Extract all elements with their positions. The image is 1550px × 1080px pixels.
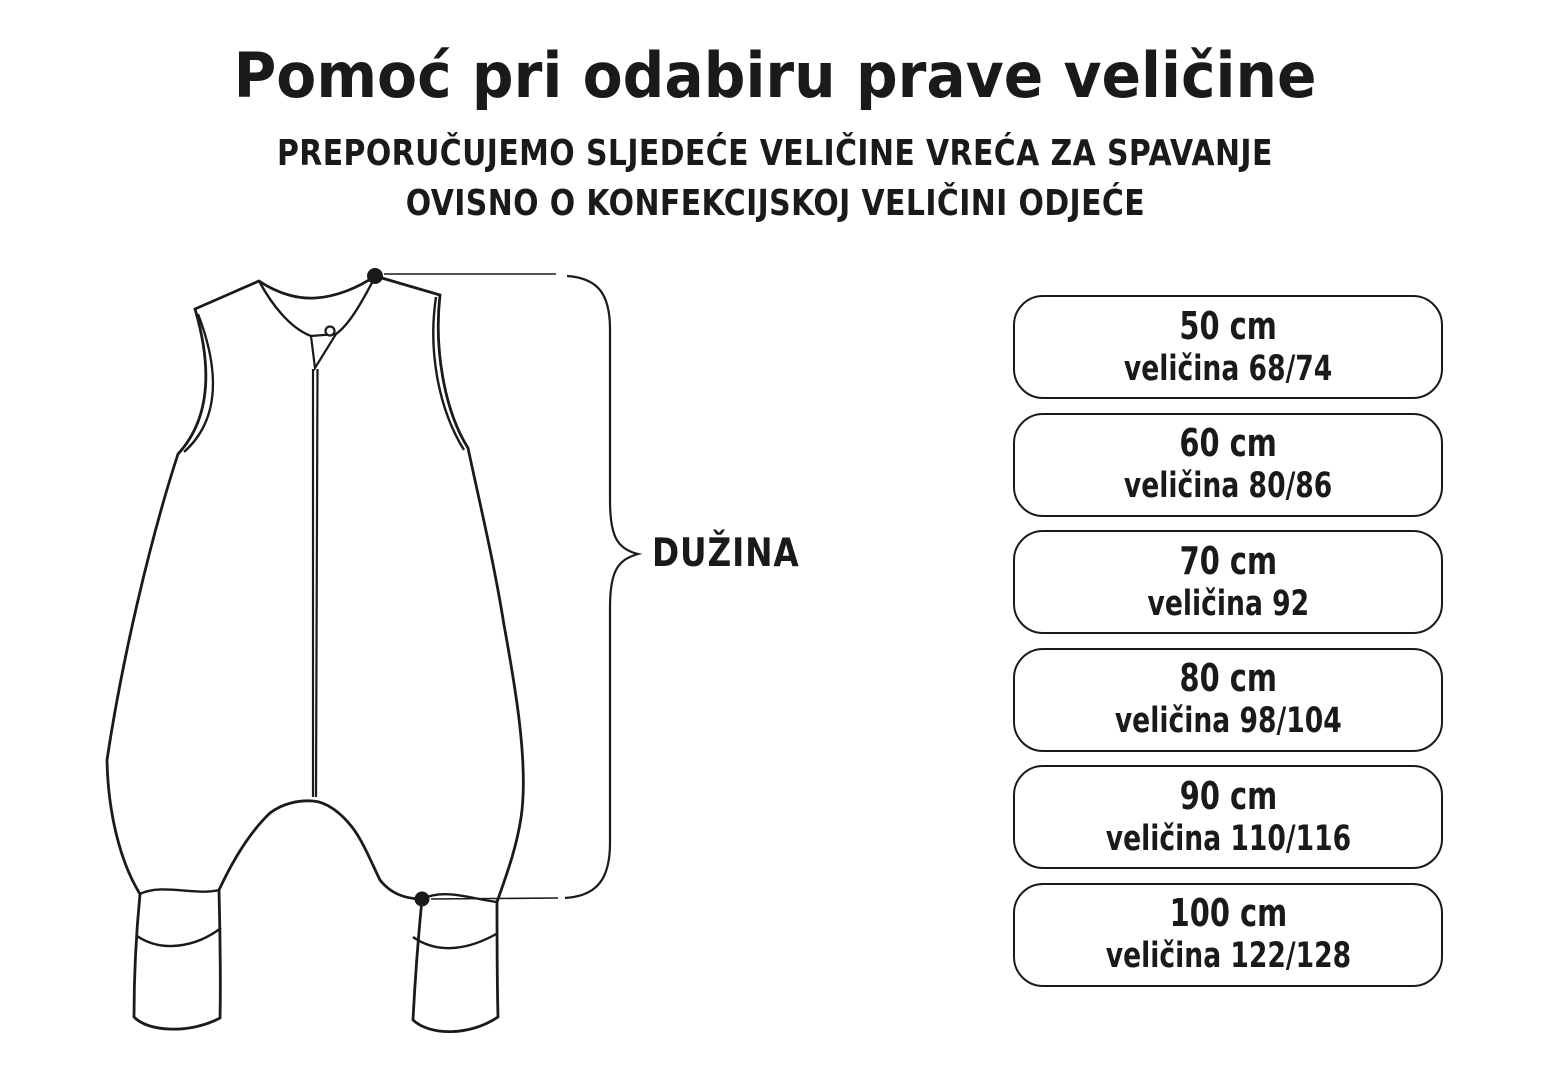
size-length: 70 cm	[1147, 539, 1309, 584]
size-box-90cm: 90 cm veličina 110/116	[1013, 765, 1443, 869]
size-box-50cm: 50 cm veličina 68/74	[1013, 295, 1443, 399]
garment-outline	[107, 276, 523, 1032]
size-box-content: 90 cm veličina 110/116	[1105, 774, 1350, 860]
size-confection: veličina 122/128	[1105, 936, 1350, 977]
size-box-content: 80 cm veličina 98/104	[1115, 656, 1342, 742]
size-confection: veličina 80/86	[1124, 466, 1332, 507]
zipper-line	[313, 369, 318, 797]
bottom-measure-dot	[415, 892, 430, 907]
size-box-content: 50 cm veličina 68/74	[1124, 304, 1332, 390]
neckline-front-right	[336, 277, 375, 334]
measurement-line-bottom	[431, 898, 558, 899]
size-length: 100 cm	[1105, 891, 1350, 936]
size-box-80cm: 80 cm veličina 98/104	[1013, 648, 1443, 752]
right-cuff-fold-line	[413, 933, 498, 948]
zipper-flap	[311, 334, 336, 368]
size-box-100cm: 100 cm veličina 122/128	[1013, 883, 1443, 987]
size-length: 60 cm	[1124, 421, 1332, 466]
measurement-brace	[565, 276, 638, 898]
size-length: 50 cm	[1124, 304, 1332, 349]
size-length: 80 cm	[1115, 656, 1342, 701]
size-confection: veličina 92	[1147, 584, 1309, 625]
zipper-pull-icon	[326, 327, 335, 336]
neckline-front-left	[259, 281, 311, 336]
size-box-60cm: 60 cm veličina 80/86	[1013, 413, 1443, 517]
size-confection: veličina 98/104	[1115, 701, 1342, 742]
top-measure-dot	[367, 268, 383, 284]
size-box-content: 70 cm veličina 92	[1147, 539, 1309, 625]
left-cuff-seam-line	[140, 889, 219, 894]
left-cuff-fold-line	[137, 928, 221, 946]
left-armhole-inner-line	[184, 314, 213, 452]
size-guide-infographic: Pomoć pri odabiru prave veličine PREPORU…	[0, 0, 1550, 1080]
size-confection: veličina 68/74	[1124, 349, 1332, 390]
size-box-content: 60 cm veličina 80/86	[1124, 421, 1332, 507]
size-box-70cm: 70 cm veličina 92	[1013, 530, 1443, 634]
size-confection: veličina 110/116	[1105, 819, 1350, 860]
length-measurement-label: DUŽINA	[652, 534, 800, 573]
size-box-content: 100 cm veličina 122/128	[1105, 891, 1350, 977]
size-length: 90 cm	[1105, 774, 1350, 819]
size-list: 50 cm veličina 68/74 60 cm veličina 80/8…	[1013, 295, 1443, 987]
